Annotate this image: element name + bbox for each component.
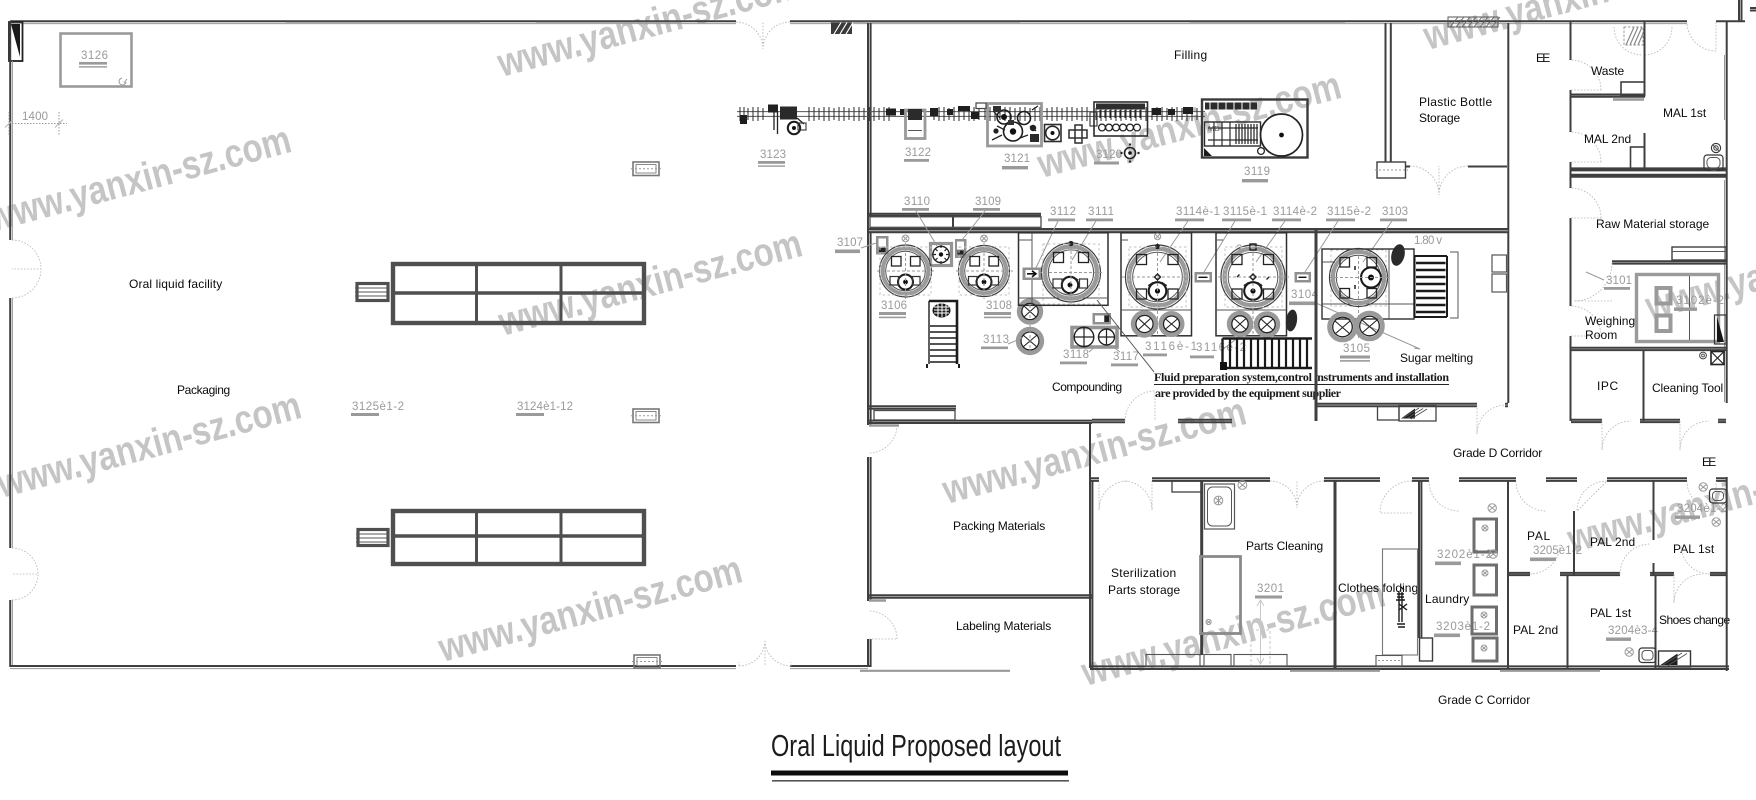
svg-text:3120: 3120 bbox=[1096, 149, 1122, 161]
svg-text:3110: 3110 bbox=[904, 196, 930, 208]
svg-text:3123: 3123 bbox=[760, 149, 786, 161]
svg-text:3201: 3201 bbox=[1257, 583, 1284, 595]
svg-text:Cleaning Tool: Cleaning Tool bbox=[1652, 381, 1723, 395]
svg-text:3204è3-4: 3204è3-4 bbox=[1608, 625, 1659, 637]
svg-text:Compounding: Compounding bbox=[1052, 380, 1122, 394]
svg-text:Sterilization: Sterilization bbox=[1111, 566, 1176, 580]
svg-text:EE: EE bbox=[1536, 51, 1550, 65]
svg-text:MD: MD bbox=[1208, 124, 1220, 133]
svg-text:3101: 3101 bbox=[1606, 275, 1632, 287]
svg-text:Grade D Corridor: Grade D Corridor bbox=[1453, 446, 1542, 460]
svg-text:3113: 3113 bbox=[983, 334, 1009, 346]
svg-text:Storage: Storage bbox=[1419, 111, 1461, 125]
svg-text:3105: 3105 bbox=[1343, 343, 1370, 355]
svg-text:3111: 3111 bbox=[1088, 206, 1114, 218]
svg-text:3106: 3106 bbox=[881, 300, 907, 312]
svg-text:3124è1-12: 3124è1-12 bbox=[517, 401, 573, 413]
svg-text:3121: 3121 bbox=[1004, 153, 1030, 165]
svg-text:Plastic Bottle: Plastic Bottle bbox=[1419, 95, 1493, 109]
svg-text:Sugar melting: Sugar melting bbox=[1400, 351, 1473, 365]
svg-text:Packaging: Packaging bbox=[177, 383, 230, 397]
svg-text:PAL 2nd: PAL 2nd bbox=[1513, 623, 1558, 637]
svg-text:3203è1-2: 3203è1-2 bbox=[1436, 621, 1490, 633]
svg-text:3104: 3104 bbox=[1291, 289, 1319, 301]
svg-text:MAL 1st: MAL 1st bbox=[1663, 106, 1707, 120]
svg-text:Filling: Filling bbox=[1174, 48, 1207, 62]
svg-text:3126: 3126 bbox=[81, 50, 108, 62]
svg-text:3119: 3119 bbox=[1244, 166, 1270, 178]
svg-text:1.80 v: 1.80 v bbox=[1414, 235, 1442, 247]
svg-text:3108: 3108 bbox=[986, 300, 1012, 312]
svg-text:3115è-2: 3115è-2 bbox=[1327, 206, 1371, 218]
svg-text:3103: 3103 bbox=[1382, 206, 1408, 218]
svg-text:Weighing: Weighing bbox=[1585, 314, 1635, 328]
svg-text:1400: 1400 bbox=[22, 111, 48, 123]
svg-text:Grade C Corridor: Grade C Corridor bbox=[1438, 693, 1530, 707]
svg-text:3107: 3107 bbox=[837, 237, 863, 249]
svg-text:3118: 3118 bbox=[1063, 349, 1089, 361]
svg-text:PAL 1st: PAL 1st bbox=[1673, 542, 1715, 556]
svg-text:Raw Material storage: Raw Material storage bbox=[1596, 217, 1710, 231]
svg-text:Fluid preparation system,contr: Fluid preparation system,control instrum… bbox=[1154, 370, 1449, 384]
svg-text:3117: 3117 bbox=[1113, 351, 1139, 363]
svg-text:Laundry: Laundry bbox=[1425, 592, 1469, 606]
svg-text:Room: Room bbox=[1585, 328, 1617, 342]
svg-text:PAL 1st: PAL 1st bbox=[1590, 606, 1632, 620]
svg-text:MAL 2nd: MAL 2nd bbox=[1584, 132, 1631, 146]
svg-text:3204è1-2: 3204è1-2 bbox=[1677, 503, 1727, 515]
svg-text:PAL 2nd: PAL 2nd bbox=[1590, 535, 1635, 549]
svg-text:Waste: Waste bbox=[1591, 64, 1625, 78]
svg-text:are provided by the equipment: are provided by the equipment supplier bbox=[1155, 386, 1342, 400]
svg-text:EE: EE bbox=[1702, 455, 1716, 469]
svg-text:Clothes folding: Clothes folding bbox=[1338, 581, 1418, 595]
svg-text:3114è-1: 3114è-1 bbox=[1176, 206, 1220, 218]
svg-text:3102è-2: 3102è-2 bbox=[1676, 295, 1724, 307]
svg-text:IPC: IPC bbox=[1597, 379, 1619, 393]
svg-text:Oral liquid facility: Oral liquid facility bbox=[129, 277, 222, 291]
svg-text:Parts Cleaning: Parts Cleaning bbox=[1246, 539, 1323, 553]
svg-text:Shoes change: Shoes change bbox=[1659, 613, 1731, 627]
svg-text:PAL: PAL bbox=[1527, 529, 1551, 543]
svg-text:Parts storage: Parts storage bbox=[1108, 583, 1181, 597]
svg-text:3122: 3122 bbox=[905, 147, 931, 159]
svg-text:Oral Liquid Proposed layout: Oral Liquid Proposed layout bbox=[771, 728, 1061, 763]
svg-text:Labeling Materials: Labeling Materials bbox=[956, 619, 1051, 633]
svg-text:3112: 3112 bbox=[1050, 206, 1076, 218]
svg-text:3114è-2: 3114è-2 bbox=[1273, 206, 1317, 218]
svg-text:3115è-1: 3115è-1 bbox=[1223, 206, 1267, 218]
svg-text:Packing Materials: Packing Materials bbox=[953, 519, 1045, 533]
svg-text:3109: 3109 bbox=[975, 196, 1001, 208]
svg-text:2: 2 bbox=[1236, 244, 1242, 256]
svg-text:3125è1-2: 3125è1-2 bbox=[352, 401, 404, 413]
